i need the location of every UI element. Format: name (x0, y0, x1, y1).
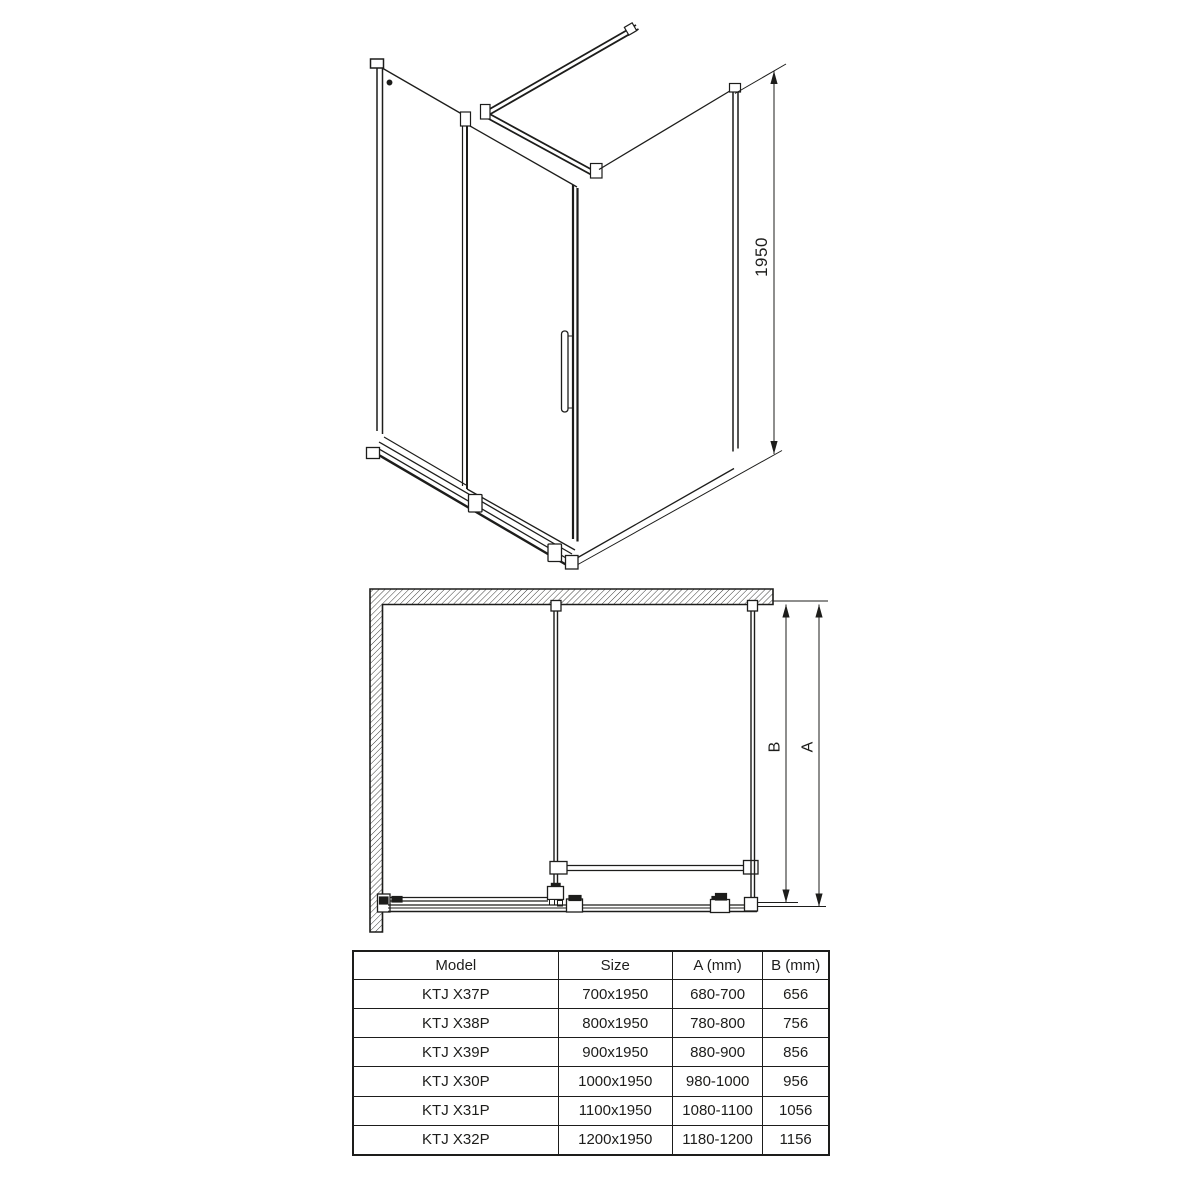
cell-b: 656 (763, 980, 829, 1009)
col-header-size: Size (558, 951, 672, 980)
side-panel-plan (748, 601, 758, 904)
plan-dim-a-label: A (800, 741, 817, 752)
table-row: KTJ X37P 700x1950 680-700 656 (353, 980, 829, 1009)
cell-model: KTJ X37P (353, 980, 558, 1009)
track-wall-bracket (367, 448, 380, 459)
cell-model: KTJ X39P (353, 1038, 558, 1067)
spec-table-container: Model Size A (mm) B (mm) KTJ X37P 700x19… (352, 950, 830, 1156)
col-header-model: Model (353, 951, 558, 980)
top-support-bars (461, 23, 639, 178)
cell-a: 680-700 (672, 980, 762, 1009)
cell-size: 700x1950 (558, 980, 672, 1009)
bar-side-clamp (591, 164, 603, 179)
cell-size: 900x1950 (558, 1038, 672, 1067)
cell-b: 1056 (763, 1096, 829, 1125)
cell-b: 756 (763, 1009, 829, 1038)
table-row: KTJ X30P 1000x1950 980-1000 956 (353, 1067, 829, 1096)
table-row: KTJ X39P 900x1950 880-900 856 (353, 1038, 829, 1067)
bar-clamp-left (550, 862, 567, 875)
page-canvas: 1950 (0, 0, 1200, 1200)
cell-b: 856 (763, 1038, 829, 1067)
cell-size: 1000x1950 (558, 1067, 672, 1096)
bar-panel-clamp (461, 112, 471, 126)
table-header-row: Model Size A (mm) B (mm) (353, 951, 829, 980)
panel-foot-connector (548, 887, 564, 900)
bottom-track (367, 437, 579, 569)
table-row: KTJ X31P 1100x1950 1080-1100 1056 (353, 1096, 829, 1125)
track-end-cap-plan (745, 898, 758, 912)
cell-size: 1100x1950 (558, 1096, 672, 1125)
support-bar-plan (550, 861, 758, 875)
sliding-door (467, 126, 578, 550)
table-row: KTJ X32P 1200x1950 1180-1200 1156 (353, 1125, 829, 1155)
iso-height-dimension-label: 1950 (752, 237, 771, 277)
dimension-1950: 1950 (735, 64, 786, 454)
arrowhead-down (815, 894, 822, 907)
plan-view-drawing: B A (350, 580, 850, 945)
bar-junction-clamp (481, 105, 491, 120)
cell-b: 1156 (763, 1125, 829, 1155)
plan-dim-b-label: B (767, 742, 784, 753)
side-panel (577, 84, 782, 566)
fixed-panel (383, 69, 467, 490)
fixed-panel-plan (548, 601, 564, 907)
cell-b: 956 (763, 1067, 829, 1096)
cell-a: 780-800 (672, 1009, 762, 1038)
wall-hatched (370, 589, 773, 932)
door-roller-plan (711, 900, 730, 913)
track-plan (378, 894, 758, 913)
col-header-b-mm: B (mm) (763, 951, 829, 980)
cell-model: KTJ X32P (353, 1125, 558, 1155)
cell-a: 1080-1100 (672, 1096, 762, 1125)
cell-a: 1180-1200 (672, 1125, 762, 1155)
cell-model: KTJ X31P (353, 1096, 558, 1125)
wall-profile (371, 59, 392, 434)
door-handle (562, 331, 569, 412)
cell-size: 1200x1950 (558, 1125, 672, 1155)
spec-table: Model Size A (mm) B (mm) KTJ X37P 700x19… (352, 950, 830, 1156)
arrowhead-down (770, 441, 777, 454)
arrowhead-up (815, 605, 822, 618)
cell-size: 800x1950 (558, 1009, 672, 1038)
cell-a: 980-1000 (672, 1067, 762, 1096)
arrowhead-up (782, 605, 789, 618)
roller-bracket (548, 544, 562, 562)
roller-bracket (469, 495, 483, 513)
cell-a: 880-900 (672, 1038, 762, 1067)
isometric-view-drawing: 1950 (350, 15, 800, 580)
col-header-a-mm: A (mm) (672, 951, 762, 980)
cell-model: KTJ X38P (353, 1009, 558, 1038)
arrowhead-down (782, 890, 789, 903)
dimension-a-b: B A (757, 601, 828, 907)
track-end-cap (566, 556, 579, 570)
table-row: KTJ X38P 800x1950 780-800 756 (353, 1009, 829, 1038)
cell-model: KTJ X30P (353, 1067, 558, 1096)
